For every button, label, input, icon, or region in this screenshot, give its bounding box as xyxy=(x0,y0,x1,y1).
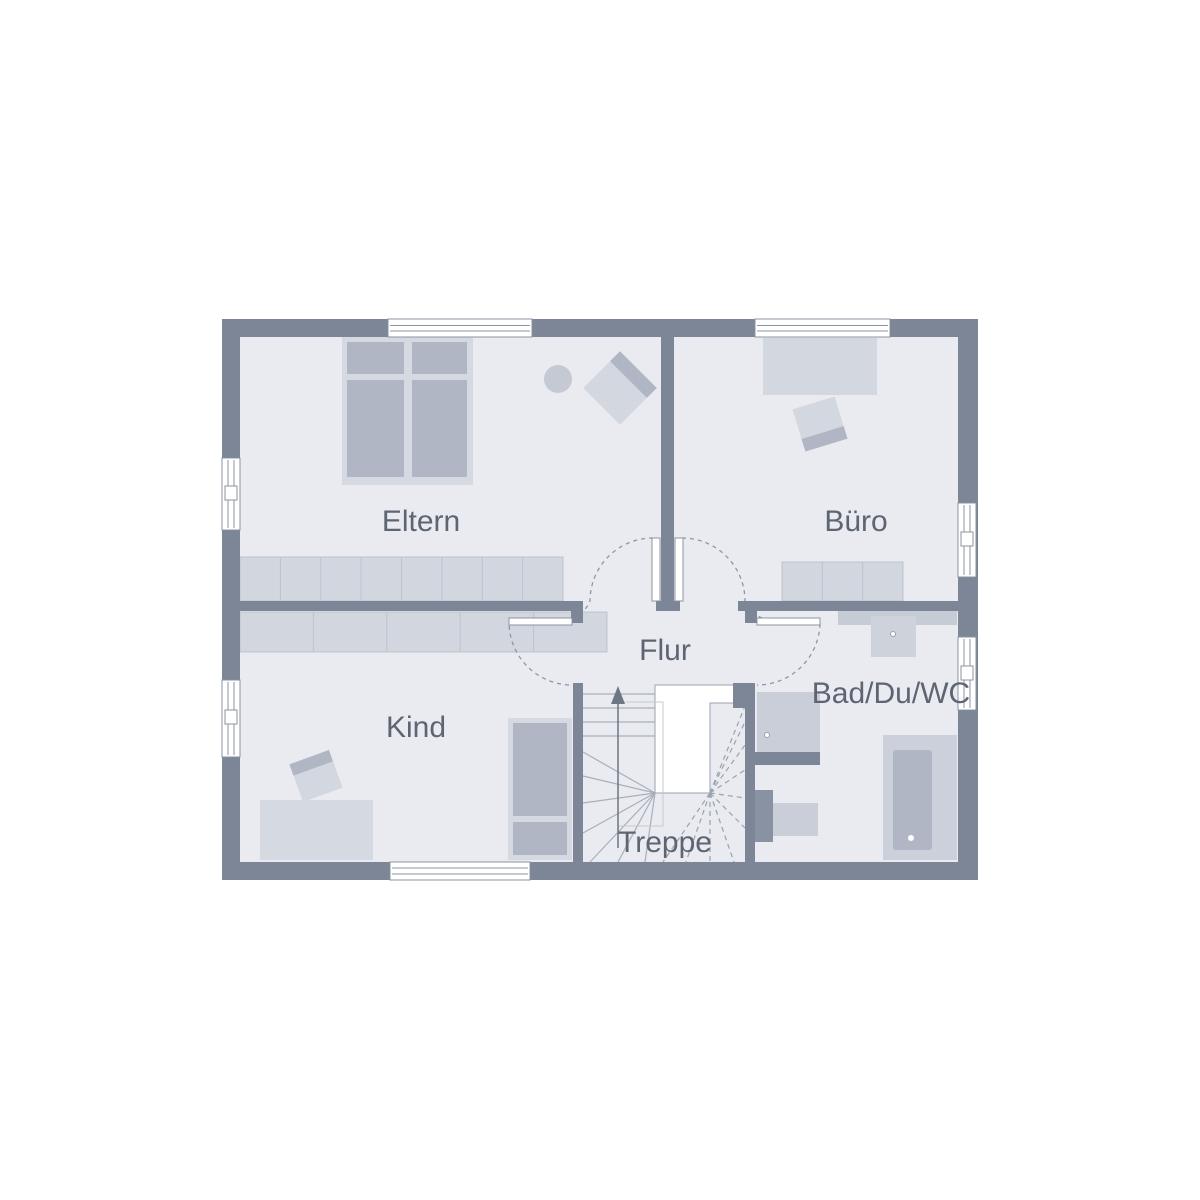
room-label-flur: Flur xyxy=(639,634,691,667)
door-leaf-bad xyxy=(757,618,820,625)
wall-stair-right xyxy=(745,683,755,862)
window-top-eltern xyxy=(388,319,532,337)
wall-shower-partition xyxy=(755,752,820,765)
wall-stair-left xyxy=(573,683,583,862)
shower-icon xyxy=(757,692,820,752)
wall-buero-bad xyxy=(738,601,958,611)
door-leaf-buero xyxy=(675,538,683,601)
floor-plan-page: Eltern Büro Flur Kind Treppe Bad/Du/WC xyxy=(0,0,1200,1200)
floor-plan-drawing: Eltern Büro Flur Kind Treppe Bad/Du/WC xyxy=(0,0,1200,1200)
wall-eltern-buero xyxy=(661,337,674,601)
room-label-kind: Kind xyxy=(386,711,446,744)
room-label-buero: Büro xyxy=(824,505,887,538)
room-label-treppe: Treppe xyxy=(618,826,712,859)
window-left-eltern xyxy=(222,458,240,530)
door-leaf-kind xyxy=(509,618,572,625)
wall-eltern-kind xyxy=(240,601,583,611)
window-top-buero xyxy=(755,319,890,337)
room-label-eltern: Eltern xyxy=(382,505,460,538)
window-bottom-kind xyxy=(390,862,530,880)
room-label-bad: Bad/Du/WC xyxy=(812,677,970,710)
desk-icon-buero xyxy=(763,338,877,395)
desk-icon-kind xyxy=(260,800,373,860)
wardrobe-eltern-icon xyxy=(240,557,563,601)
door-leaf-eltern xyxy=(652,538,660,601)
single-bed-icon xyxy=(508,718,572,860)
stool-icon xyxy=(544,365,572,393)
double-bed-icon xyxy=(342,337,473,485)
window-left-kind xyxy=(222,680,240,757)
bathtub-icon xyxy=(883,735,957,860)
sideboard-buero-icon xyxy=(782,562,903,601)
window-right-buero xyxy=(958,503,976,577)
washbasin-icon xyxy=(871,616,916,657)
